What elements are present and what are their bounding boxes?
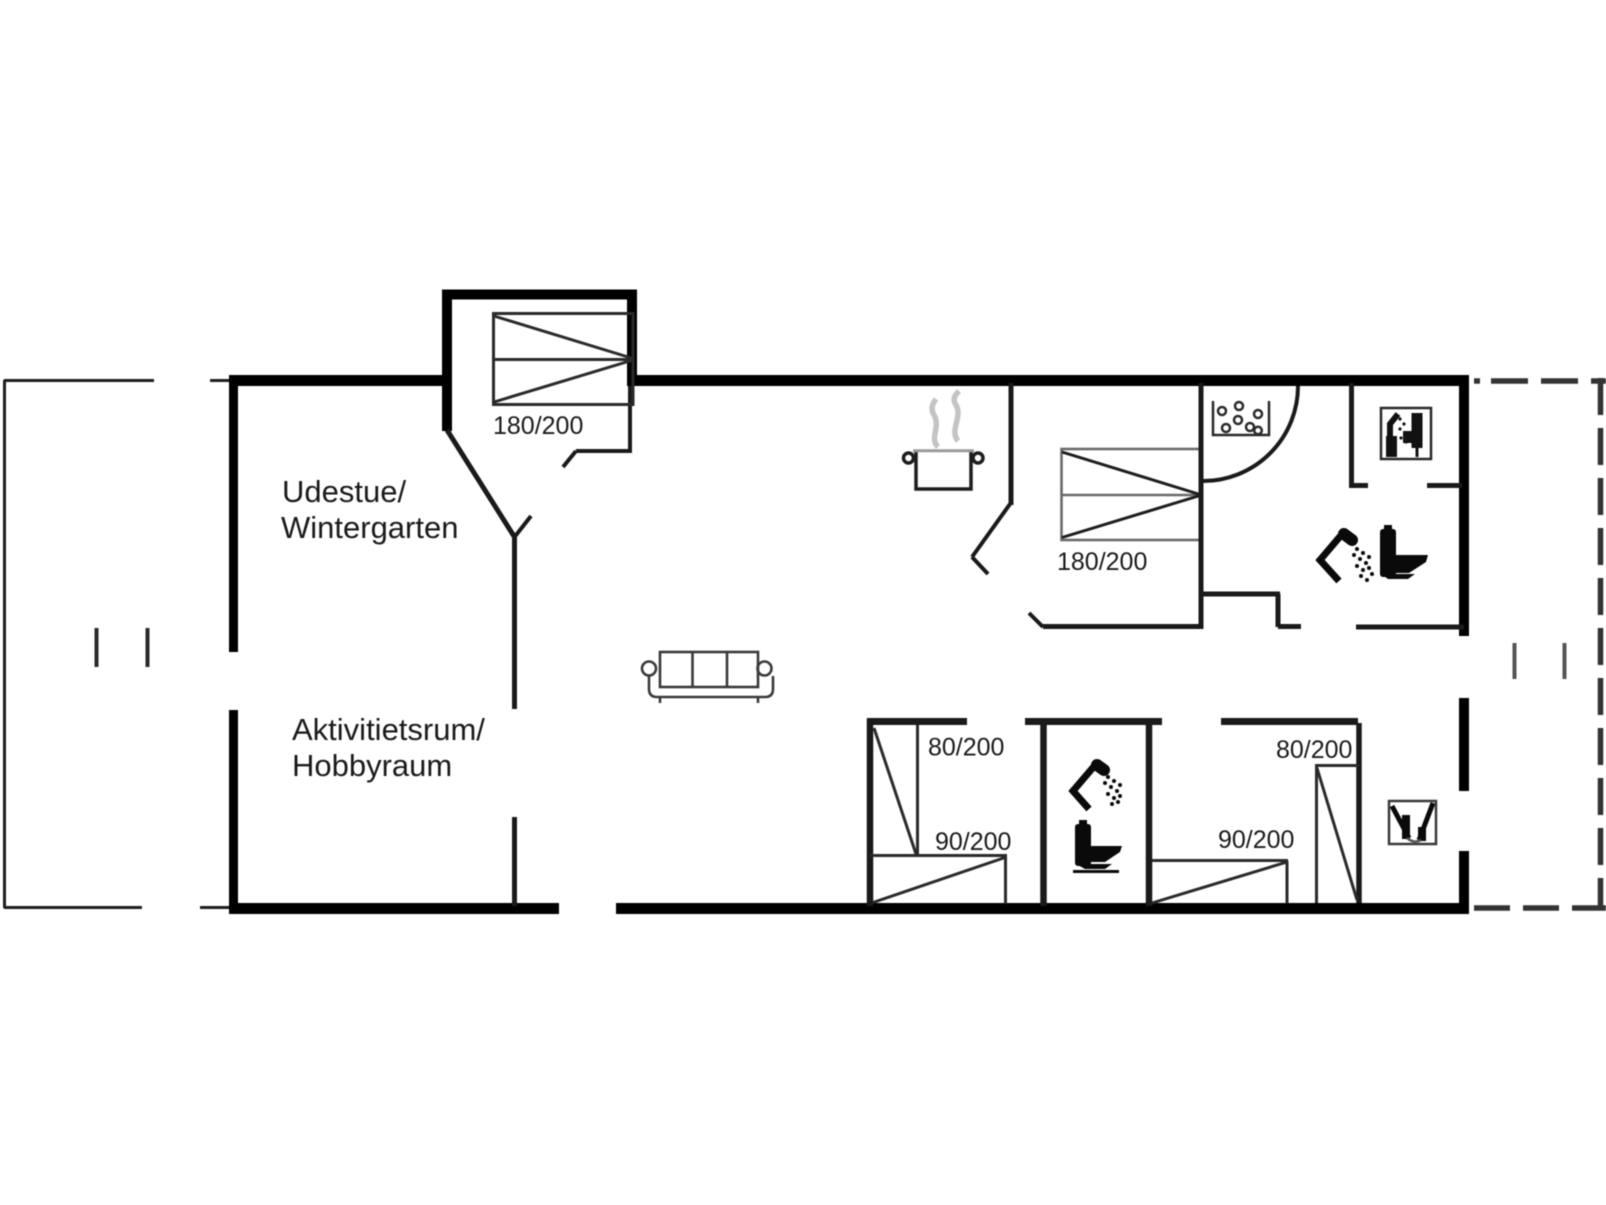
svg-text:Udestue/: Udestue/ xyxy=(282,474,406,509)
svg-text:80/200: 80/200 xyxy=(928,734,1004,762)
svg-text:180/200: 180/200 xyxy=(493,412,583,440)
svg-text:90/200: 90/200 xyxy=(935,828,1011,856)
svg-text:90/200: 90/200 xyxy=(1218,826,1294,854)
svg-text:80/200: 80/200 xyxy=(1276,736,1352,764)
svg-text:180/200: 180/200 xyxy=(1057,548,1147,576)
svg-text:Hobbyraum: Hobbyraum xyxy=(292,748,452,783)
svg-text:Wintergarten: Wintergarten xyxy=(281,510,458,545)
svg-text:Aktivitietsrum/: Aktivitietsrum/ xyxy=(292,712,485,747)
